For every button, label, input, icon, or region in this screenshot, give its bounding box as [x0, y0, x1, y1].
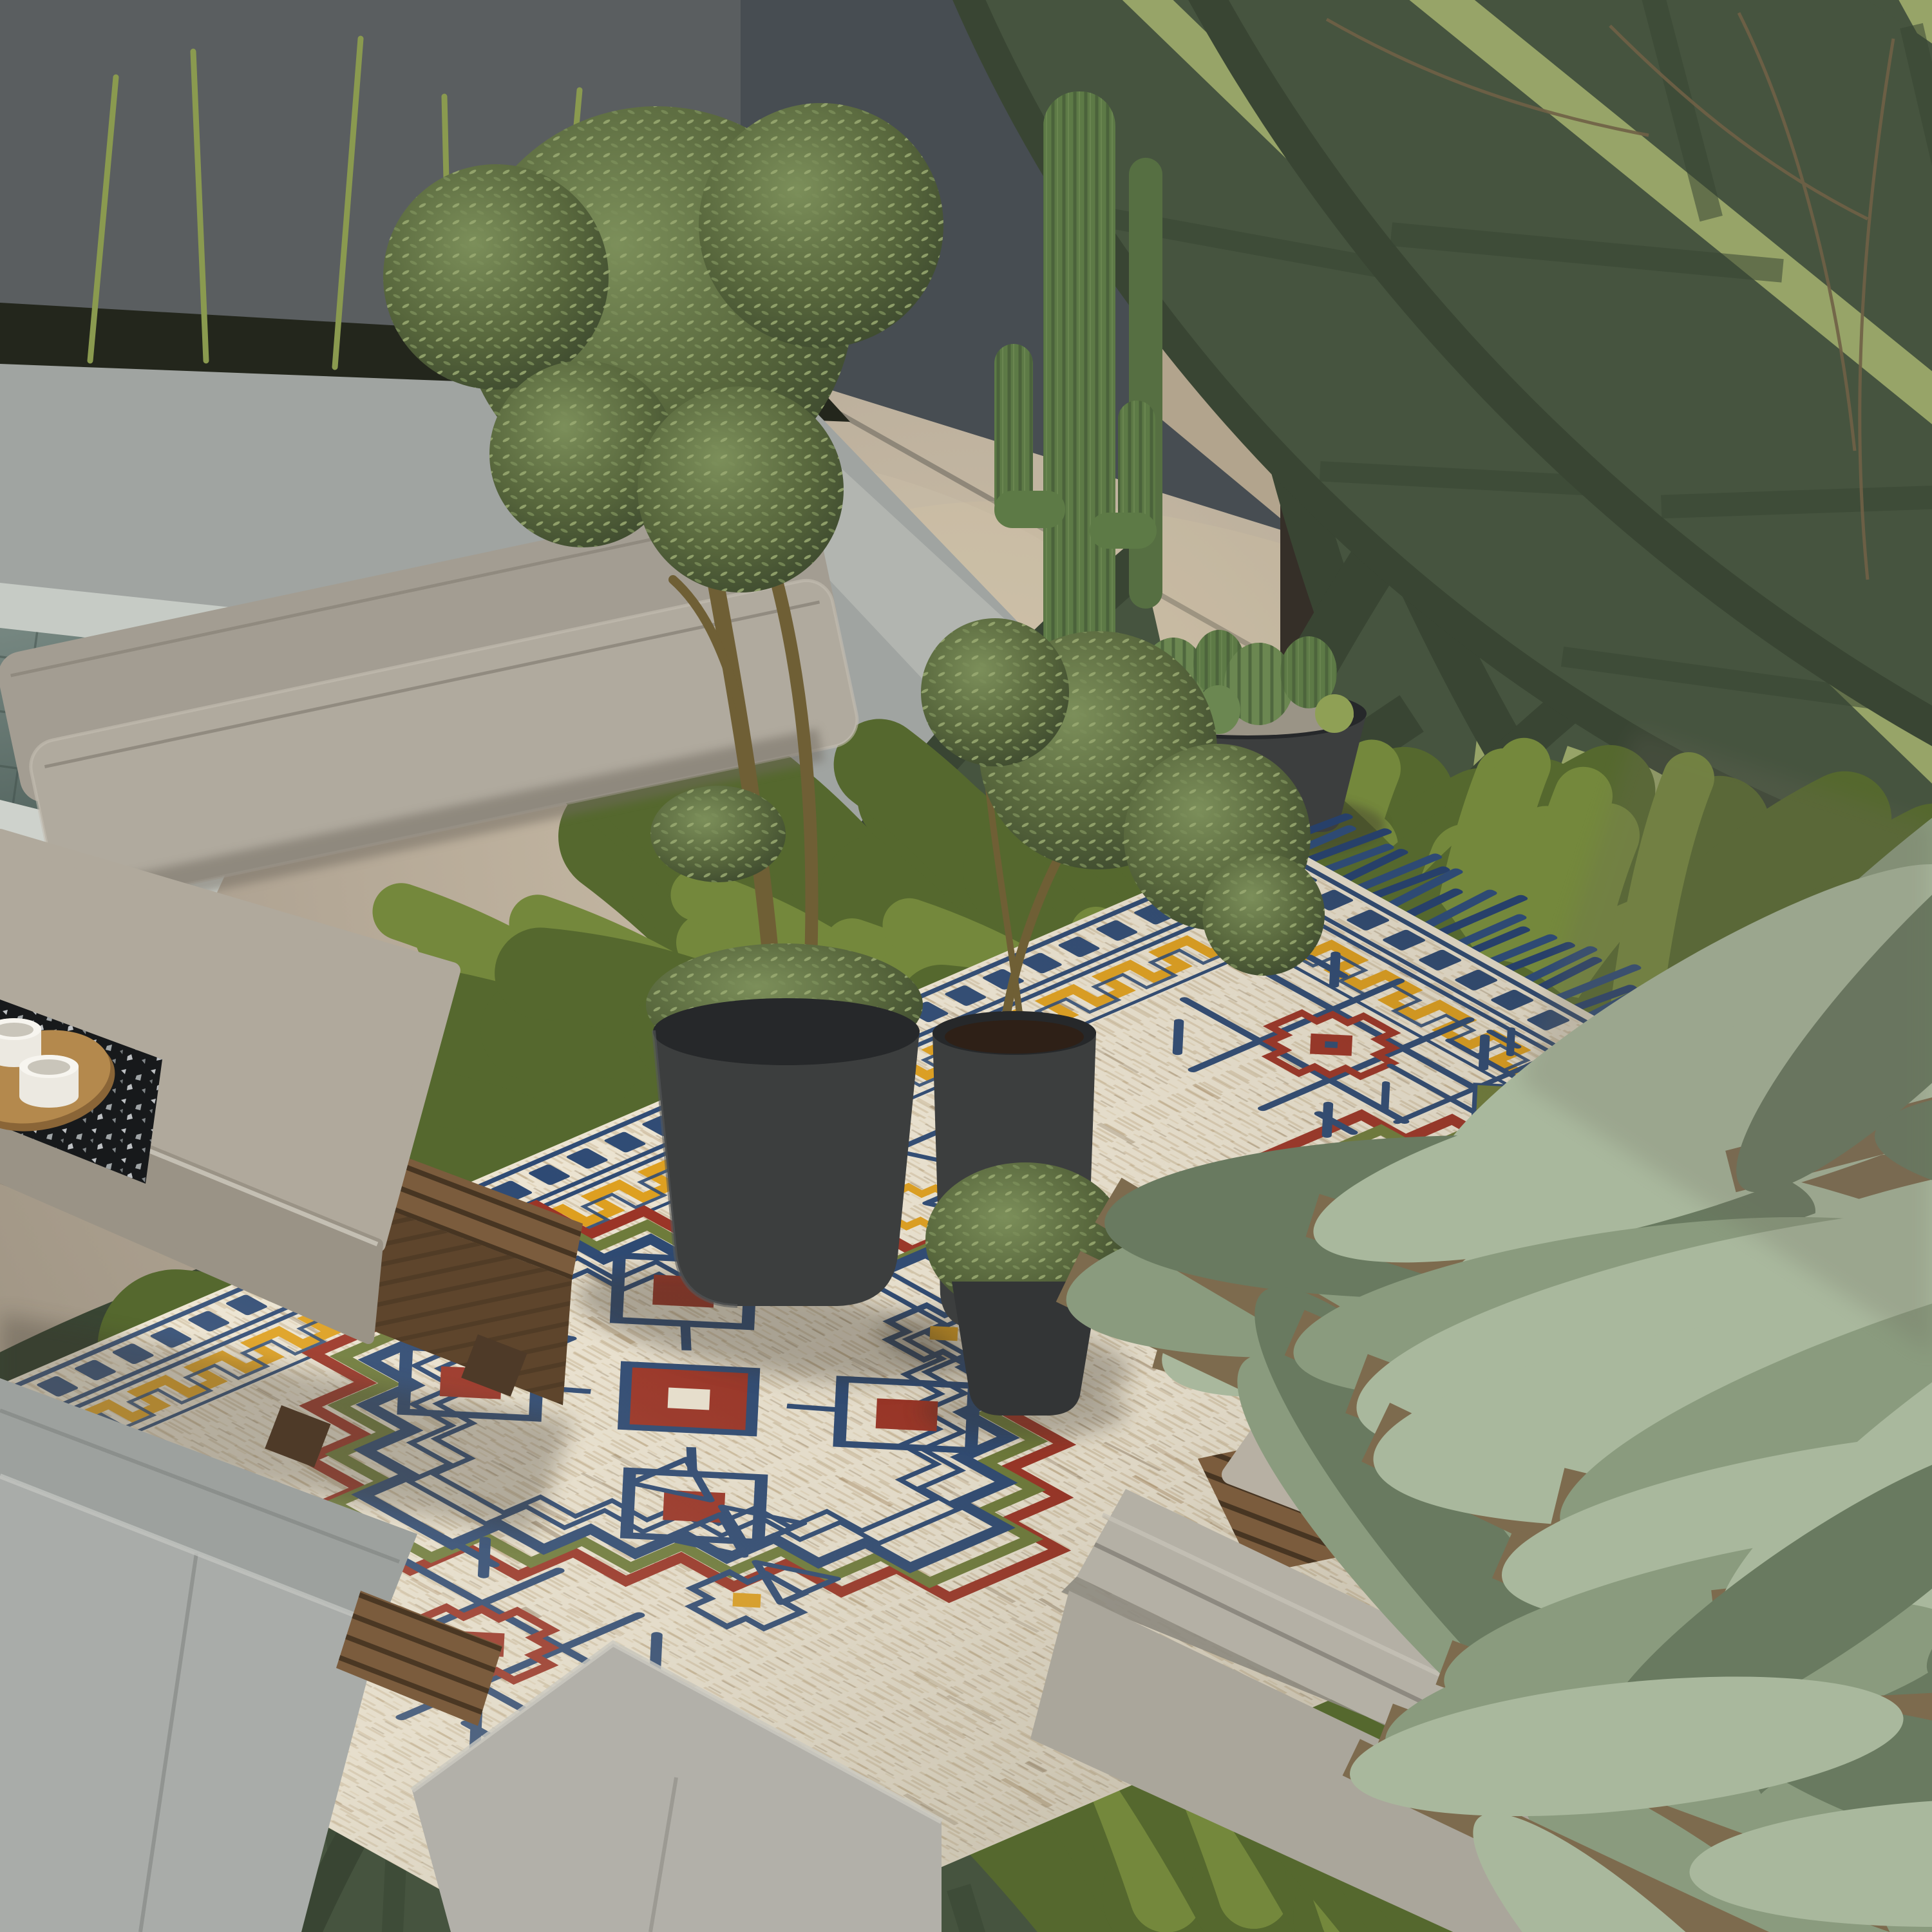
scene-canvas	[0, 0, 1932, 1932]
cup-2	[19, 1055, 79, 1108]
pot-soil	[945, 1020, 1084, 1054]
patio-scene	[0, 0, 1932, 1932]
pot-large	[654, 1030, 920, 1306]
